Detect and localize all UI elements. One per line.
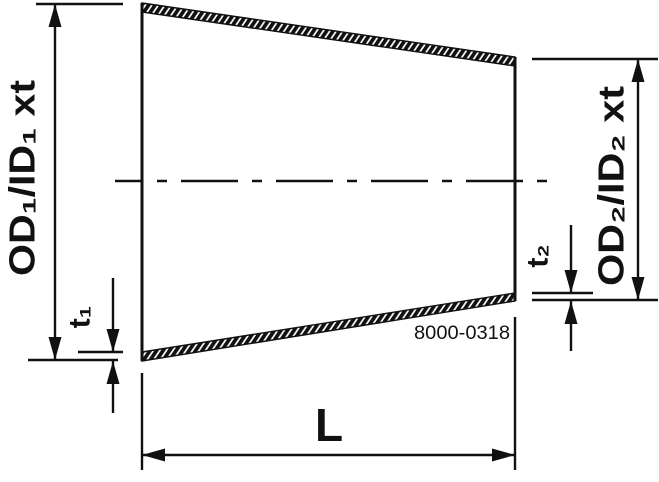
t1-arrow-up-icon — [107, 361, 120, 384]
od1-dimension: OD₁/ID₁ xt — [2, 4, 124, 360]
t1-arrow-down-icon — [107, 329, 120, 352]
od1-label: OD₁/ID₁ xt — [2, 80, 43, 276]
od2-arrow-up-icon — [632, 59, 645, 82]
reducer-body — [115, 3, 558, 361]
length-label: L — [315, 399, 343, 451]
length-arrow-left-icon — [142, 449, 165, 462]
part-number: 8000-0318 — [414, 323, 510, 344]
od1-arrow-down-icon — [49, 337, 62, 360]
reducer-drawing: OD₁/ID₁ xt t₁ OD₂/ID₂ xt t₂ — [0, 0, 659, 477]
t1-dimension: t₁ — [64, 278, 124, 413]
top-wall-hatched — [142, 3, 515, 66]
t2-arrow-up-icon — [565, 301, 578, 324]
od1-arrow-up-icon — [49, 4, 62, 27]
reducer-drawing-canvas: OD₁/ID₁ xt t₁ OD₂/ID₂ xt t₂ — [0, 0, 659, 477]
t2-arrow-down-icon — [565, 270, 578, 293]
t2-dimension: t₂ — [522, 225, 594, 351]
t1-label: t₁ — [64, 306, 97, 328]
od2-label: OD₂/ID₂ xt — [591, 86, 632, 286]
od2-arrow-down-icon — [632, 277, 645, 300]
t2-label: t₂ — [522, 244, 555, 267]
length-arrow-right-icon — [492, 449, 515, 462]
